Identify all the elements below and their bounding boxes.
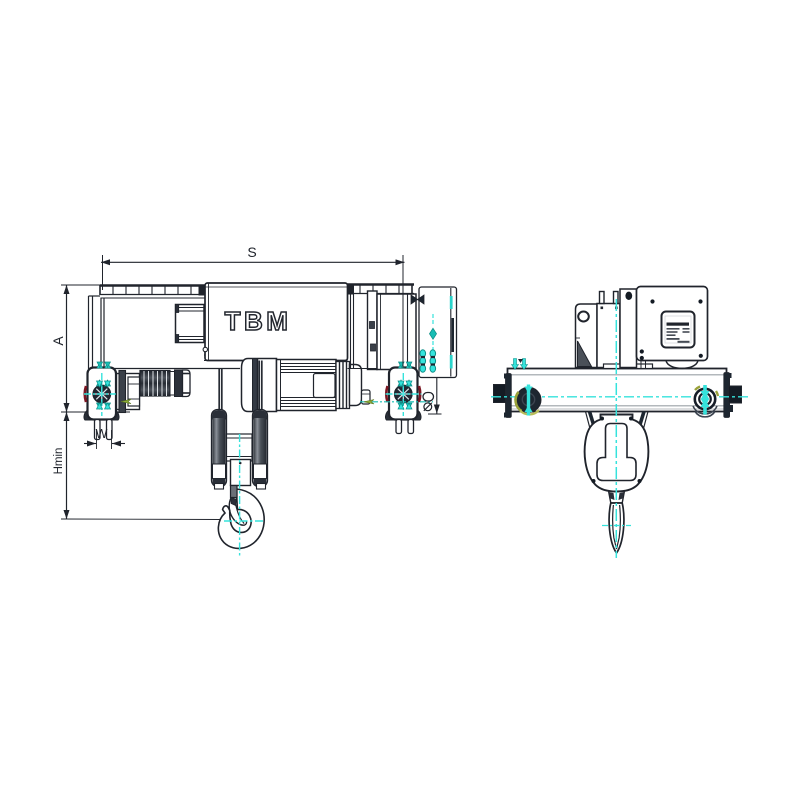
- svg-text:Hmin: Hmin: [53, 448, 65, 475]
- svg-text:A: A: [50, 336, 66, 346]
- svg-text:W: W: [96, 427, 108, 441]
- svg-text:S: S: [247, 244, 256, 260]
- svg-text:TBM: TBM: [225, 306, 292, 336]
